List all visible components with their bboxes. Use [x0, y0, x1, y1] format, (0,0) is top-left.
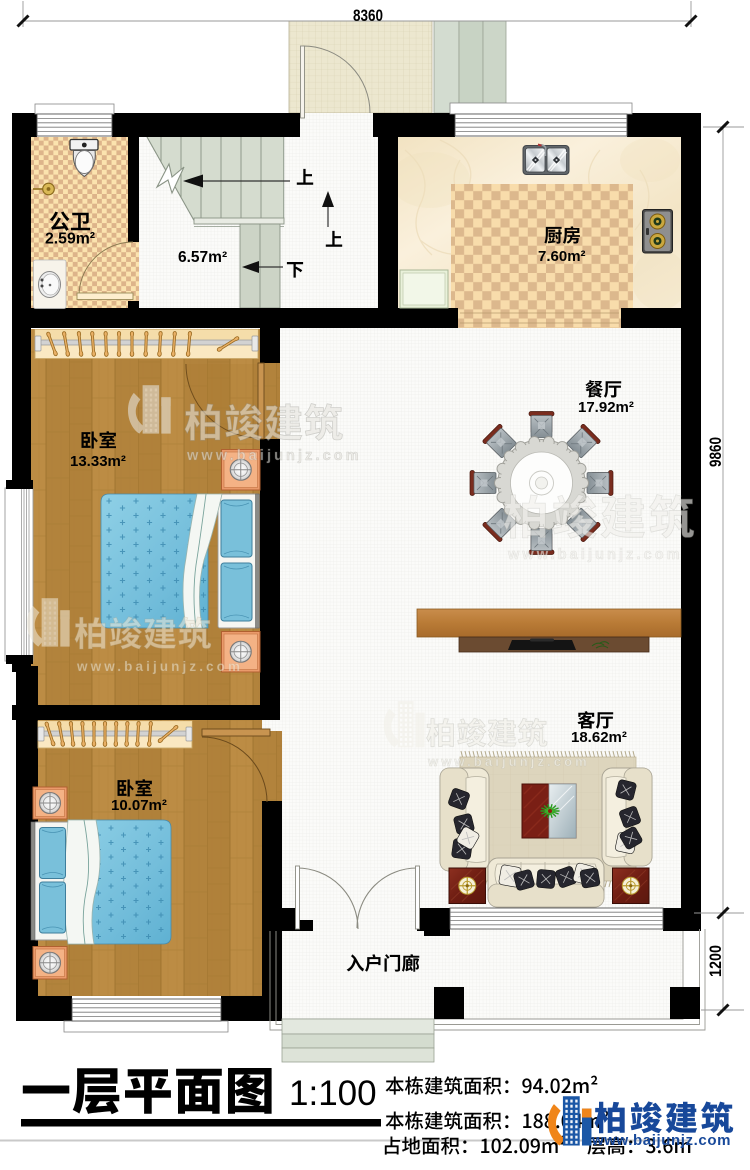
svg-text:10.07m²: 10.07m² [111, 797, 167, 814]
svg-text:13.33m²: 13.33m² [70, 453, 126, 470]
svg-text:9860: 9860 [707, 437, 725, 467]
svg-text:1:100: 1:100 [289, 1074, 377, 1113]
svg-text:7.60m²: 7.60m² [538, 248, 586, 265]
svg-text:8360: 8360 [353, 7, 383, 25]
svg-text:www.baijunjz.com: www.baijunjz.com [427, 754, 590, 769]
svg-text:6.57m²: 6.57m² [178, 249, 227, 266]
svg-text:www.baijunjz.com: www.baijunjz.com [507, 547, 683, 563]
svg-text:www.baijunjz.com: www.baijunjz.com [186, 448, 362, 464]
svg-text:1200: 1200 [707, 945, 725, 977]
svg-text:17.92m²: 17.92m² [578, 399, 634, 416]
svg-text:18.62m²: 18.62m² [571, 729, 627, 746]
svg-text:www.baijunjz.com: www.baijunjz.com [76, 659, 243, 674]
svg-text:www.baijunjz.com: www.baijunjz.com [591, 1132, 731, 1149]
svg-text:2.59m²: 2.59m² [45, 231, 95, 248]
